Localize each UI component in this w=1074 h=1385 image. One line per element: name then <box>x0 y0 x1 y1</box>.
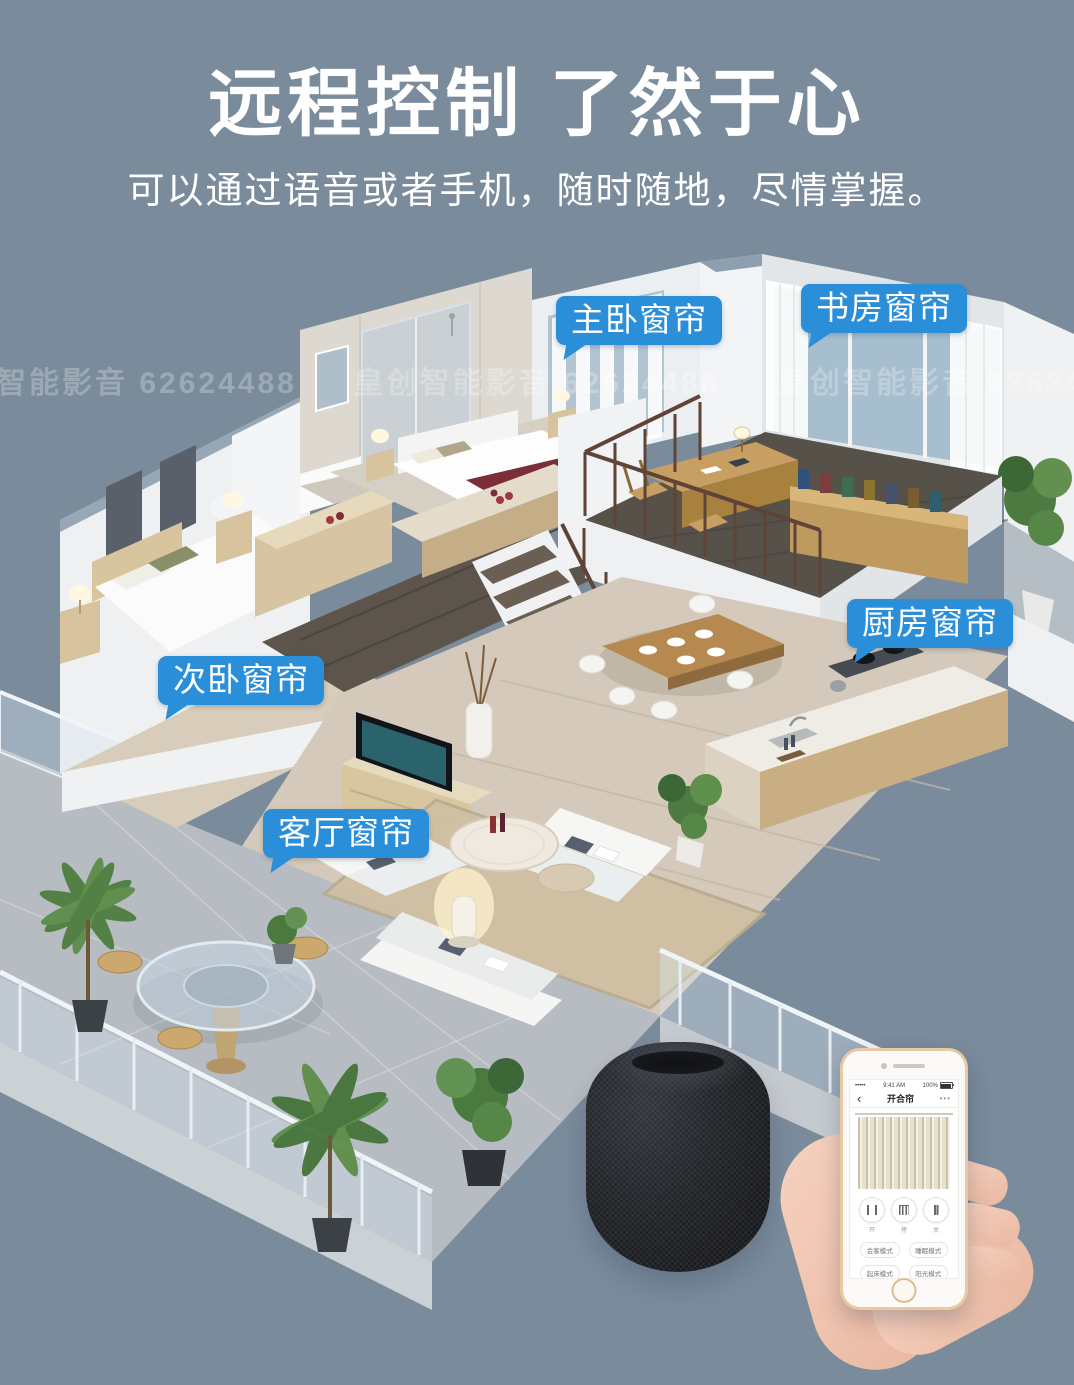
poster-page: 远程控制 了然于心 可以通过语音或者手机，随时随地，尽情掌握。 皇创智能影音 6… <box>0 0 1074 1310</box>
curtain-pause-icon <box>899 1205 909 1215</box>
callout-label: 客厅窗帘 <box>278 814 414 851</box>
callout-study-curtain: 书房窗帘 <box>801 284 967 333</box>
callout-label: 次卧窗帘 <box>173 661 309 698</box>
phone-nav-bar: ‹ 开合帘 ••• <box>850 1090 958 1108</box>
front-camera-icon <box>881 1063 887 1069</box>
callout-kitchen-curtain: 厨房窗帘 <box>847 599 1013 648</box>
curtain-open-button: 开 <box>859 1197 885 1234</box>
curtain-controls: 开 停 关 <box>850 1193 958 1234</box>
curtain-close-button: 关 <box>923 1197 949 1234</box>
curtain-close-icon <box>931 1205 941 1215</box>
mode-button: 起床模式 <box>860 1265 900 1279</box>
callout-master-bedroom-curtain: 主卧窗帘 <box>556 296 722 345</box>
page-title: 远程控制 了然于心 <box>0 44 1074 151</box>
more-ellipsis-icon: ••• <box>940 1094 951 1103</box>
mode-button: 阳光模式 <box>909 1265 949 1279</box>
smartphone: ••••• 9:41 AM 100% ‹ 开合帘 ••• 开 <box>840 1048 968 1310</box>
callout-second-bedroom-curtain: 次卧窗帘 <box>158 656 324 705</box>
app-title: 开合帘 <box>887 1092 914 1105</box>
mode-button: 会客模式 <box>860 1242 900 1258</box>
curtain-preview <box>858 1117 950 1189</box>
control-label: 开 <box>869 1225 875 1234</box>
page-subtitle: 可以通过语音或者手机，随时随地，尽情掌握。 <box>0 160 1074 214</box>
callout-living-room-curtain: 客厅窗帘 <box>263 809 429 858</box>
phone-status-bar: ••••• 9:41 AM 100% <box>850 1080 958 1090</box>
control-label: 停 <box>901 1225 907 1234</box>
curtain-open-icon <box>867 1205 877 1215</box>
control-label: 关 <box>933 1225 939 1234</box>
callout-label: 书房窗帘 <box>816 289 952 326</box>
phone-screen: ••••• 9:41 AM 100% ‹ 开合帘 ••• 开 <box>849 1079 959 1279</box>
battery-icon <box>940 1082 953 1089</box>
mode-button: 睡眠模式 <box>909 1242 949 1258</box>
earpiece-icon <box>893 1064 925 1068</box>
battery-percent: 100% <box>923 1083 938 1089</box>
curtain-pause-button: 停 <box>891 1197 917 1234</box>
back-chevron-icon: ‹ <box>857 1092 861 1105</box>
smart-speaker <box>586 1042 770 1272</box>
callout-label: 主卧窗帘 <box>571 301 707 338</box>
status-time: 9:41 AM <box>883 1083 905 1089</box>
scene-modes: 会客模式 睡眠模式 起床模式 阳光模式 <box>850 1234 958 1279</box>
home-button <box>892 1278 917 1303</box>
callout-label: 厨房窗帘 <box>862 604 998 641</box>
signal-dots-icon: ••••• <box>855 1083 866 1089</box>
